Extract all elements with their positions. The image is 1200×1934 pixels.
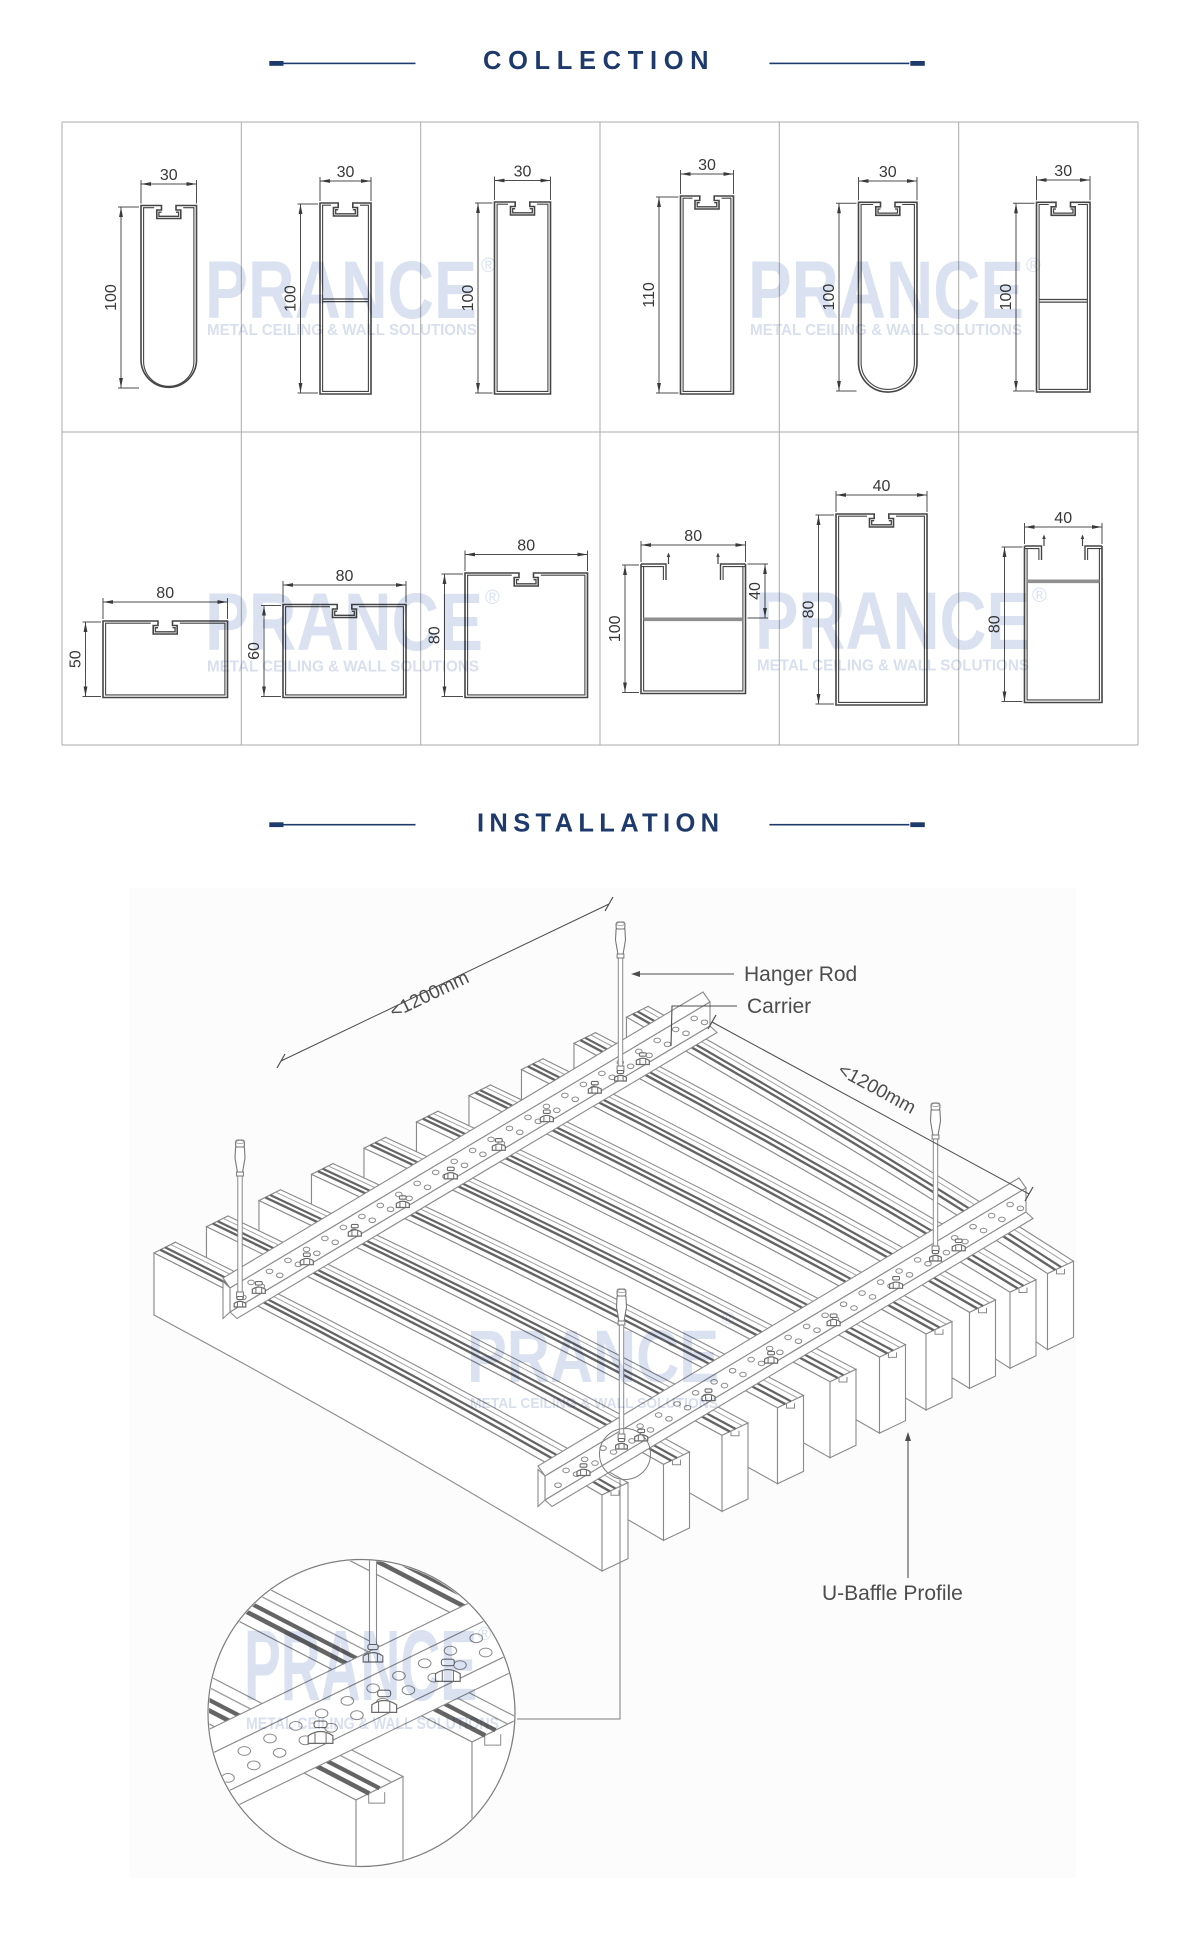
svg-text:40: 40: [873, 478, 891, 495]
svg-text:METAL CEILING & WALL SOLUTIONS: METAL CEILING & WALL SOLUTIONS: [470, 1395, 718, 1412]
svg-text:U-Baffle Profile: U-Baffle Profile: [822, 1582, 963, 1605]
svg-text:Carrier: Carrier: [747, 995, 811, 1018]
svg-text:®: ®: [485, 587, 500, 609]
svg-text:100: 100: [607, 615, 624, 642]
svg-text:30: 30: [1054, 163, 1072, 180]
svg-text:80: 80: [156, 585, 174, 602]
svg-text:®: ®: [1032, 585, 1047, 607]
svg-text:COLLECTION: COLLECTION: [483, 47, 715, 75]
svg-text:50: 50: [68, 650, 85, 668]
svg-text:30: 30: [160, 167, 178, 184]
svg-text:PRANCE: PRANCE: [205, 577, 483, 668]
svg-text:®: ®: [1026, 255, 1041, 277]
svg-text:30: 30: [337, 164, 355, 181]
svg-text:METAL CEILING & WALL SOLUTIONS: METAL CEILING & WALL SOLUTIONS: [207, 659, 479, 676]
svg-text:INSTALLATION: INSTALLATION: [477, 810, 724, 838]
svg-text:80: 80: [517, 538, 535, 555]
svg-text:METAL CEILING & WALL SOLUTIONS: METAL CEILING & WALL SOLUTIONS: [750, 322, 1022, 339]
svg-text:100: 100: [103, 284, 120, 311]
svg-text:Hanger Rod: Hanger Rod: [744, 963, 857, 986]
svg-text:PRANCE: PRANCE: [244, 1610, 477, 1722]
svg-text:80: 80: [684, 528, 702, 545]
svg-text:METAL CEILING & WALL SOLUTIONS: METAL CEILING & WALL SOLUTIONS: [207, 322, 477, 339]
svg-text:30: 30: [698, 157, 716, 174]
svg-text:PRANCE: PRANCE: [755, 576, 1030, 667]
svg-text:METAL CEILING & WALL SOLUTIONS: METAL CEILING & WALL SOLUTIONS: [757, 658, 1029, 675]
svg-text:30: 30: [879, 164, 897, 181]
svg-text:METAL CEILING & WALL SOLUTIONS: METAL CEILING & WALL SOLUTIONS: [246, 1715, 499, 1733]
svg-text:®: ®: [481, 255, 496, 277]
svg-text:PRANCE: PRANCE: [467, 1315, 719, 1398]
svg-text:30: 30: [514, 164, 532, 181]
svg-text:110: 110: [641, 282, 658, 308]
svg-text:40: 40: [1054, 510, 1072, 527]
svg-text:®: ®: [722, 1309, 735, 1328]
